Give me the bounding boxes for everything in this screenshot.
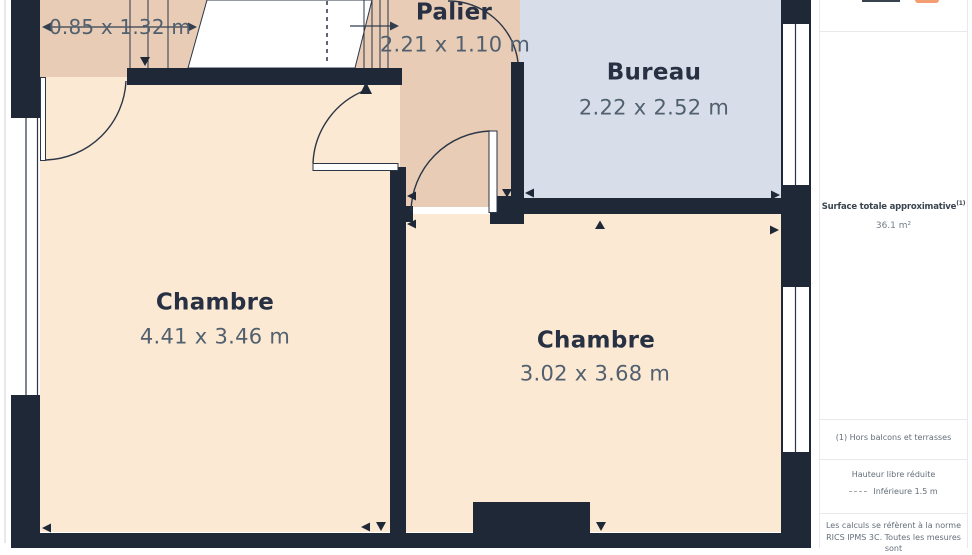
window-right-top — [783, 24, 809, 185]
legend-row: Inférieure 1.5 m — [820, 487, 967, 496]
room-dims-chambre-left: 4.41 x 3.46 m — [140, 327, 290, 348]
panel-divider — [820, 513, 967, 514]
total-area-label-text: Surface totale approximative — [822, 202, 957, 212]
panel-divider — [820, 419, 967, 420]
stair-dims-label: 0.85 x 1.32 m — [49, 17, 191, 37]
total-area-note-mark: (1) — [956, 200, 965, 207]
floor-selector-button-fragment[interactable] — [915, 0, 939, 3]
room-label-chambre-left: Chambre — [156, 292, 274, 315]
chimney-block — [473, 502, 590, 533]
total-area-label: Surface totale approximative(1) — [820, 200, 967, 212]
room-dims-chambre-right: 3.02 x 3.68 m — [520, 364, 670, 385]
room-label-palier: Palier — [416, 2, 492, 25]
floor-plan-canvas[interactable]: Palier 2.21 x 1.10 m Bureau 2.22 x 2.52 … — [0, 0, 812, 548]
total-area-value: 36.1 m² — [820, 221, 967, 231]
clipped-button-text-fragment — [862, 0, 900, 2]
panel-divider — [820, 459, 967, 460]
dashed-line-icon — [849, 491, 867, 492]
window-left — [12, 118, 38, 395]
window-right-bottom — [783, 287, 809, 452]
legend-item-label: Inférieure 1.5 m — [873, 487, 937, 496]
room-label-bureau: Bureau — [607, 62, 702, 85]
room-label-chambre-right: Chambre — [537, 330, 655, 353]
area-footnote: (1) Hors balcons et terrasses — [820, 433, 967, 442]
summary-panel: Surface totale approximative(1) 36.1 m² … — [819, 0, 968, 548]
legend-title: Hauteur libre réduite — [820, 470, 967, 479]
room-dims-bureau: 2.22 x 2.52 m — [579, 98, 729, 119]
room-dims-palier: 2.21 x 1.10 m — [380, 35, 530, 56]
panel-divider — [820, 31, 967, 32]
disclaimer-text: Les calculs se réfèrent à la norme RICS … — [820, 520, 967, 555]
